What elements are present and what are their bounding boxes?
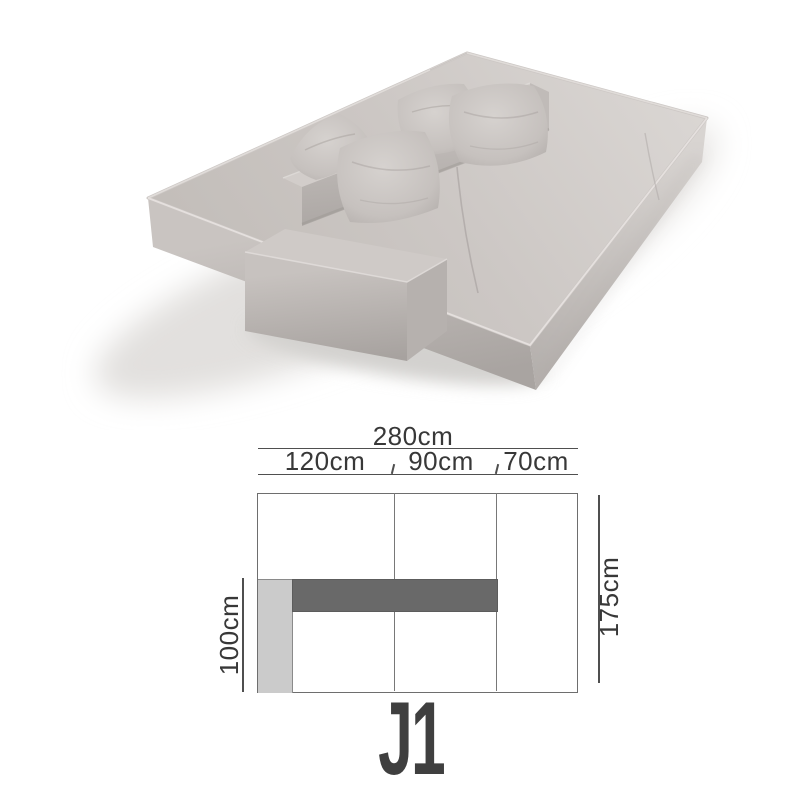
dimension-label-segment-2: 90cm bbox=[386, 448, 496, 474]
dimension-label-chaise: 100cm bbox=[215, 585, 243, 685]
dimension-label-depth: 175cm bbox=[595, 547, 623, 647]
product-spec-image: 280cm 120cm 90cm 70cm 175cm 100cm J1 bbox=[0, 0, 800, 800]
diagram-backrest bbox=[292, 579, 498, 612]
model-label: J1 bbox=[321, 687, 501, 791]
diagram-armrest bbox=[258, 579, 293, 693]
dimension-label-segment-1: 120cm bbox=[270, 448, 380, 474]
sofa-pillow bbox=[337, 131, 440, 223]
sofa-render-image bbox=[0, 0, 800, 430]
sofa-pillow bbox=[449, 84, 548, 166]
dimension-line-segments bbox=[258, 474, 578, 475]
